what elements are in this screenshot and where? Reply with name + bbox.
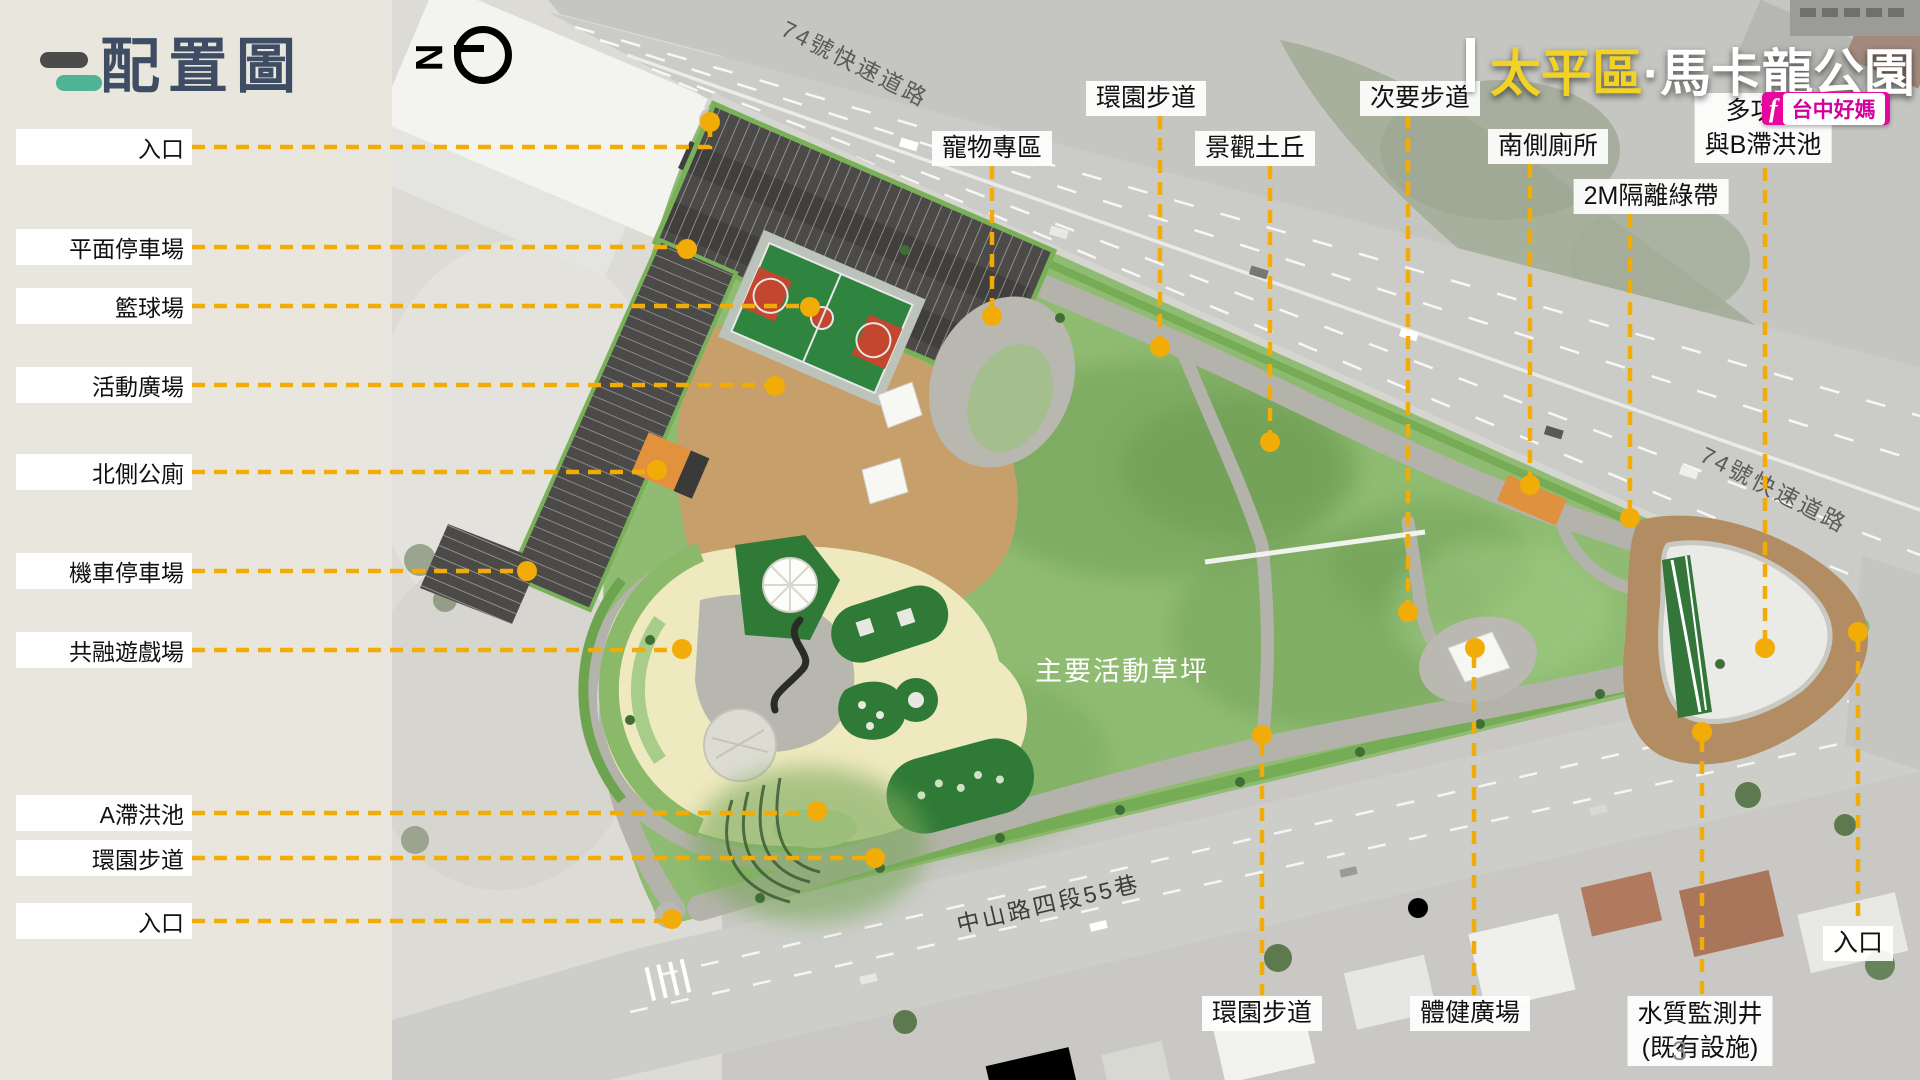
label-perimeter-trail-bottom: 環園步道 bbox=[1202, 996, 1322, 1031]
badge-text: 台中好媽 bbox=[1783, 93, 1885, 125]
legend-entrance-top: 入口 bbox=[16, 129, 192, 165]
legend-motorcycle-parking: 機車停車場 bbox=[16, 553, 192, 589]
compass-ring-icon bbox=[454, 26, 512, 84]
legend-activity-plaza: 活動廣場 bbox=[16, 367, 192, 403]
label-water-monitoring-well: 水質監測井 (既有設施) bbox=[1627, 996, 1772, 1066]
compass-pointer-icon bbox=[454, 45, 484, 52]
legend-surface-parking: 平面停車場 bbox=[16, 229, 192, 265]
label-secondary-trail: 次要步道 bbox=[1360, 81, 1480, 116]
label-fitness-plaza: 體健廣場 bbox=[1410, 996, 1530, 1031]
label-perimeter-trail-top: 環園步道 bbox=[1086, 81, 1206, 116]
logo-bar-teal bbox=[56, 75, 102, 91]
label-pet-zone: 寵物專區 bbox=[932, 131, 1052, 166]
label-green-belt-2m: 2M隔離綠帶 bbox=[1574, 179, 1729, 214]
label-south-toilet: 南側廁所 bbox=[1488, 129, 1608, 164]
south-entrance-plaza bbox=[655, 902, 681, 928]
label-landscape-mound: 景觀土丘 bbox=[1195, 131, 1315, 166]
district-name: 太平區 bbox=[1490, 45, 1643, 102]
logo-bar-dark bbox=[40, 52, 88, 68]
detention-pond-a bbox=[692, 767, 928, 923]
facebook-icon: f bbox=[1769, 94, 1778, 124]
main-lawn-label: 主要活動草坪 bbox=[1035, 650, 1209, 689]
title-accent-bar bbox=[1466, 38, 1475, 92]
label-entrance-east: 入口 bbox=[1823, 926, 1893, 961]
legend-entrance-bottom: 入口 bbox=[16, 903, 192, 939]
page-number: 3 bbox=[1672, 1036, 1687, 1067]
legend-detention-pond-a: A滯洪池 bbox=[16, 795, 192, 831]
legend-basketball-court: 籃球場 bbox=[16, 288, 192, 324]
facebook-badge: f 台中好媽 bbox=[1762, 92, 1890, 125]
slide-canvas: 配置圖 入口 平面停車場 籃球場 活動廣場 北側公廁 機車停車場 共融遊戲場 A… bbox=[0, 0, 1920, 1080]
legend-north-toilet: 北側公廁 bbox=[16, 454, 192, 490]
north-letter: N bbox=[406, 44, 449, 71]
page-title: 配置圖 bbox=[100, 18, 304, 105]
legend-inclusive-playground: 共融遊戲場 bbox=[16, 632, 192, 668]
legend-perimeter-trail: 環園步道 bbox=[16, 840, 192, 876]
